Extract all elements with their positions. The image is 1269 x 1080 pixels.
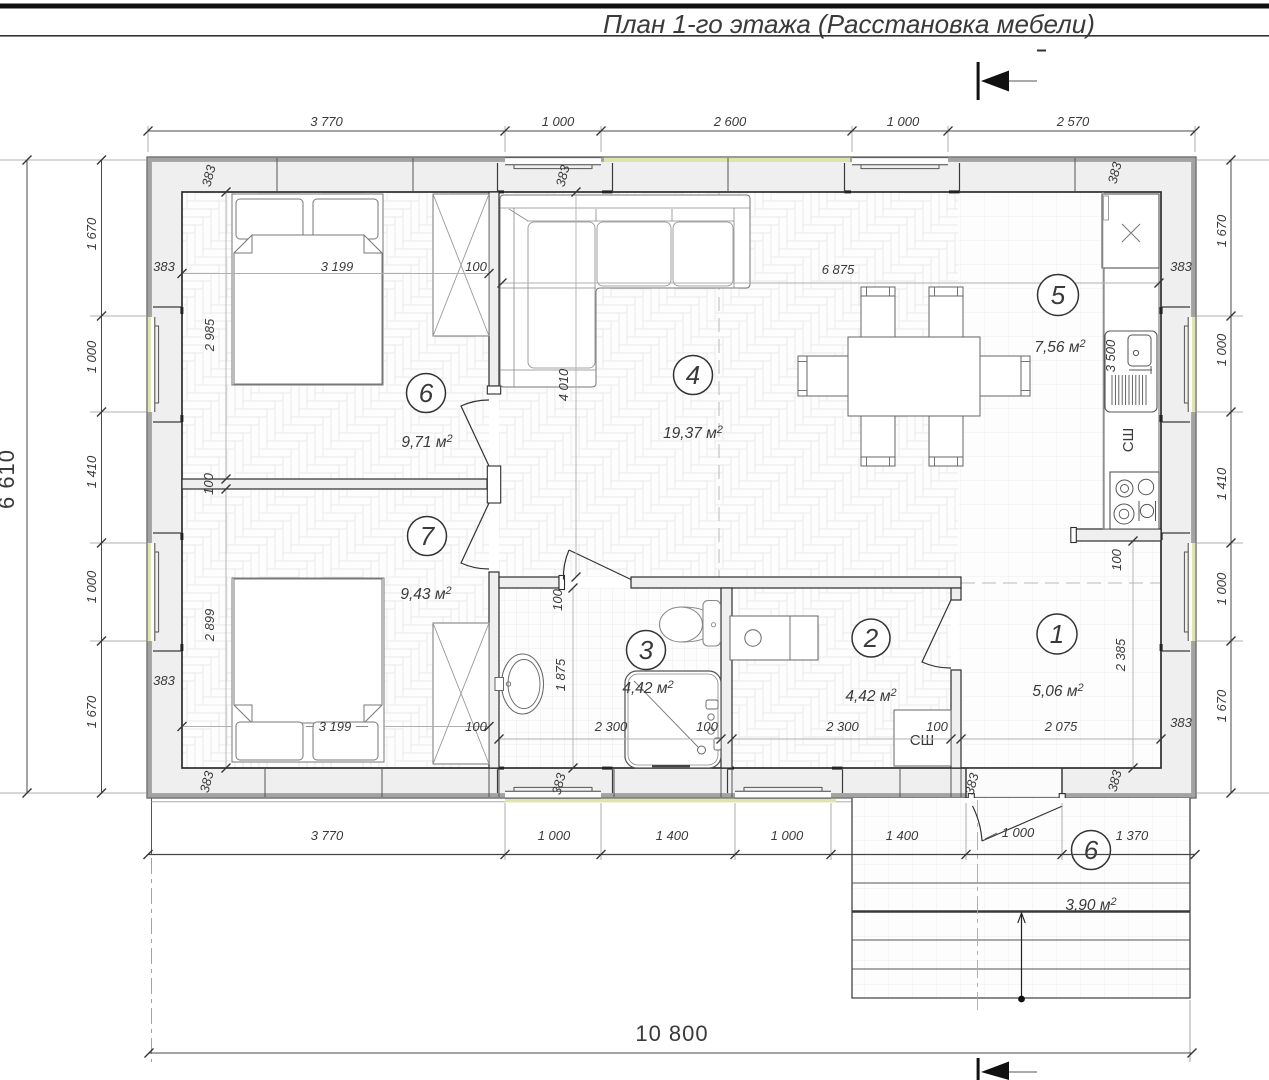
svg-text:100: 100 — [926, 719, 948, 734]
svg-text:6 875: 6 875 — [822, 262, 855, 277]
svg-text:2 985: 2 985 — [202, 318, 217, 352]
svg-text:6 610: 6 610 — [0, 449, 19, 509]
svg-text:1 000: 1 000 — [1002, 825, 1035, 840]
svg-text:383: 383 — [153, 673, 175, 688]
svg-text:100: 100 — [550, 588, 565, 610]
svg-text:1 875: 1 875 — [553, 658, 568, 691]
svg-text:5: 5 — [1051, 280, 1066, 310]
svg-text:7,56 м2: 7,56 м2 — [1034, 338, 1085, 356]
svg-text:1 000: 1 000 — [1214, 572, 1229, 605]
svg-text:10 800: 10 800 — [635, 1021, 708, 1046]
svg-text:4,42 м2: 4,42 м2 — [622, 679, 673, 697]
svg-text:9,71 м2: 9,71 м2 — [401, 433, 452, 451]
svg-text:100: 100 — [1109, 548, 1124, 570]
svg-text:7: 7 — [420, 521, 436, 551]
svg-text:2 385: 2 385 — [1113, 638, 1128, 672]
svg-text:383: 383 — [153, 259, 175, 274]
svg-text:4,42 м2: 4,42 м2 — [845, 687, 896, 705]
svg-text:1 410: 1 410 — [84, 455, 99, 488]
svg-text:1 670: 1 670 — [1214, 214, 1229, 247]
svg-text:1 670: 1 670 — [1214, 689, 1229, 722]
svg-text:СШ: СШ — [910, 732, 935, 749]
svg-text:3 199: 3 199 — [319, 719, 352, 734]
svg-text:4: 4 — [686, 360, 700, 390]
svg-text:1 400: 1 400 — [886, 828, 919, 843]
svg-text:100: 100 — [201, 472, 216, 494]
svg-text:3 770: 3 770 — [311, 828, 344, 843]
svg-text:План 1-го этажа (Расстановка м: План 1-го этажа (Расстановка мебели) — [603, 9, 1095, 39]
svg-text:1 000: 1 000 — [887, 114, 920, 129]
svg-text:1 000: 1 000 — [84, 570, 99, 603]
svg-text:1 000: 1 000 — [771, 828, 804, 843]
svg-text:3,90 м2: 3,90 м2 — [1065, 896, 1116, 914]
svg-text:9,43 м2: 9,43 м2 — [400, 585, 451, 603]
svg-text:2 899: 2 899 — [202, 609, 217, 643]
svg-text:19,37 м2: 19,37 м2 — [663, 424, 723, 442]
svg-text:2 600: 2 600 — [713, 114, 747, 129]
svg-text:3 199: 3 199 — [321, 259, 354, 274]
svg-text:3 770: 3 770 — [310, 114, 343, 129]
svg-text:383: 383 — [1170, 259, 1192, 274]
svg-text:1 410: 1 410 — [1214, 467, 1229, 500]
svg-text:1 670: 1 670 — [84, 695, 99, 728]
svg-text:1 400: 1 400 — [656, 828, 689, 843]
svg-text:6: 6 — [419, 378, 434, 408]
svg-text:5,06 м2: 5,06 м2 — [1032, 682, 1083, 700]
svg-text:100: 100 — [465, 259, 487, 274]
svg-text:1 670: 1 670 — [84, 217, 99, 250]
svg-text:1 000: 1 000 — [84, 340, 99, 373]
svg-text:2 570: 2 570 — [1056, 114, 1090, 129]
svg-text:2 075: 2 075 — [1044, 719, 1078, 734]
svg-text:1 000: 1 000 — [542, 114, 575, 129]
svg-text:1 000: 1 000 — [1214, 333, 1229, 366]
svg-text:1: 1 — [1050, 619, 1064, 649]
svg-text:2 300: 2 300 — [594, 719, 628, 734]
svg-text:2: 2 — [863, 623, 879, 653]
svg-text:3 500: 3 500 — [1103, 339, 1118, 372]
svg-text:4 010: 4 010 — [556, 368, 571, 401]
svg-text:1 000: 1 000 — [538, 828, 571, 843]
svg-text:2 300: 2 300 — [825, 719, 859, 734]
svg-text:6: 6 — [1084, 835, 1099, 865]
svg-text:3: 3 — [639, 635, 654, 665]
svg-text:100: 100 — [465, 719, 487, 734]
svg-text:СШ: СШ — [1120, 428, 1137, 453]
svg-text:383: 383 — [1170, 715, 1192, 730]
svg-text:100: 100 — [696, 719, 718, 734]
svg-text:1 370: 1 370 — [1116, 828, 1149, 843]
